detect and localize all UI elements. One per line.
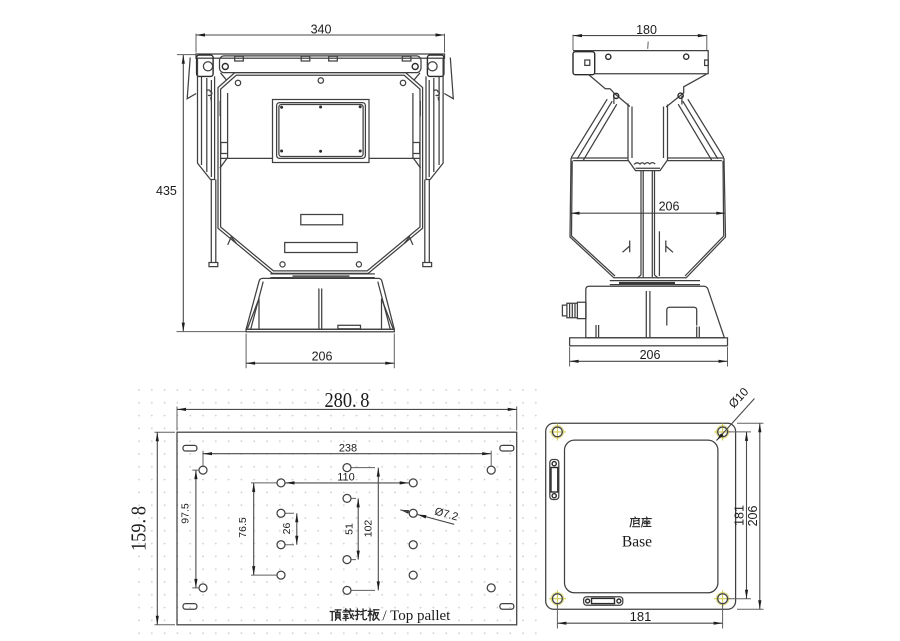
svg-text:97.5: 97.5 bbox=[180, 503, 192, 524]
svg-text:206: 206 bbox=[312, 350, 333, 364]
svg-text:110: 110 bbox=[337, 471, 355, 483]
svg-text:Base: Base bbox=[622, 533, 652, 550]
svg-text:340: 340 bbox=[311, 23, 332, 37]
svg-text:238: 238 bbox=[339, 443, 357, 455]
svg-text:280. 8: 280. 8 bbox=[325, 388, 370, 412]
svg-text:159. 8: 159. 8 bbox=[127, 506, 151, 551]
svg-text:180: 180 bbox=[636, 23, 657, 37]
svg-text:/ Top pallet: / Top pallet bbox=[383, 608, 452, 624]
svg-text:51: 51 bbox=[344, 523, 356, 535]
svg-text:206: 206 bbox=[640, 348, 661, 362]
svg-text:76.5: 76.5 bbox=[237, 517, 249, 538]
svg-text:102: 102 bbox=[363, 520, 375, 538]
svg-text:206: 206 bbox=[659, 200, 680, 214]
svg-text:435: 435 bbox=[156, 184, 177, 198]
svg-text:206: 206 bbox=[746, 506, 760, 527]
svg-text:181: 181 bbox=[732, 505, 746, 526]
svg-text:26: 26 bbox=[281, 523, 293, 535]
svg-text:181: 181 bbox=[630, 609, 652, 624]
